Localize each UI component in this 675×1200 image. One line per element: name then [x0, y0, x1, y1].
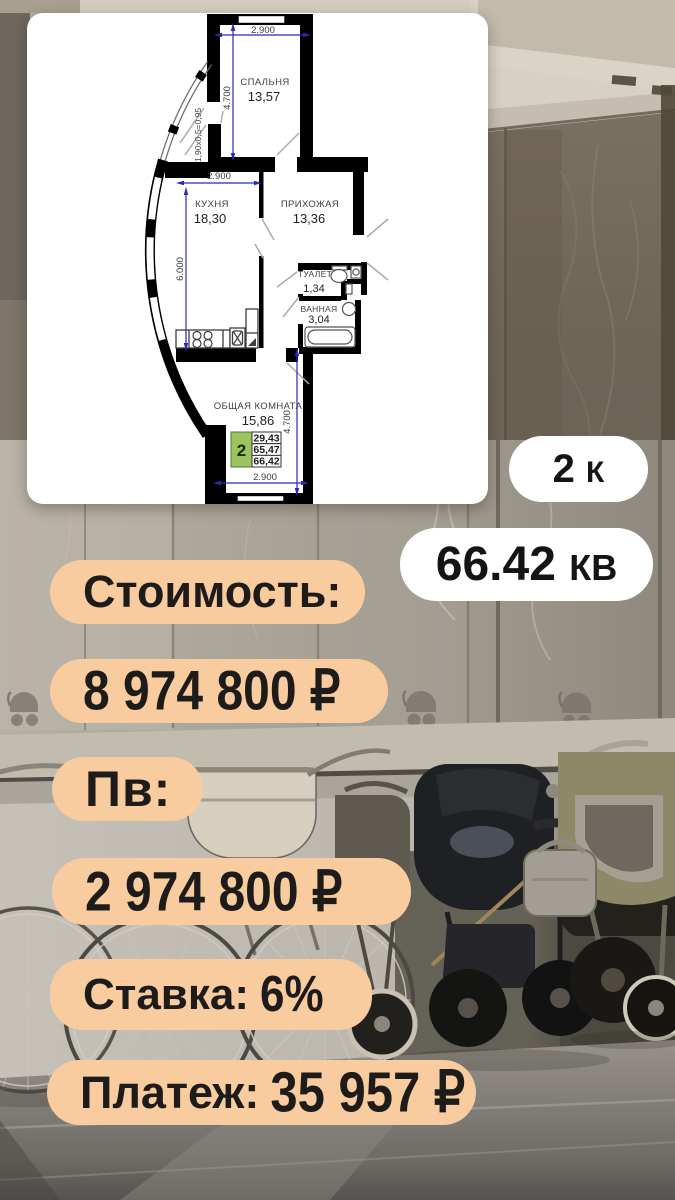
svg-text:ТУАЛЕТ: ТУАЛЕТ — [298, 269, 332, 279]
svg-text:КУХНЯ: КУХНЯ — [195, 199, 229, 210]
svg-text:3,04: 3,04 — [308, 314, 329, 326]
svg-text:66,42: 66,42 — [253, 456, 279, 468]
svg-text:2: 2 — [237, 441, 246, 460]
svg-text:1,90х0,5=0,95: 1,90х0,5=0,95 — [193, 108, 203, 162]
svg-text:29,43: 29,43 — [253, 432, 279, 444]
svg-text:6.000: 6.000 — [175, 257, 186, 281]
svg-text:СПАЛЬНЯ: СПАЛЬНЯ — [240, 77, 289, 88]
svg-text:ВАННАЯ: ВАННАЯ — [301, 304, 338, 314]
svg-text:13,57: 13,57 — [248, 89, 281, 104]
svg-text:18,30: 18,30 — [194, 211, 227, 226]
svg-text:13,36: 13,36 — [293, 211, 326, 226]
svg-text:2.900: 2.900 — [253, 472, 277, 483]
svg-text:ПРИХОЖАЯ: ПРИХОЖАЯ — [281, 199, 339, 210]
svg-text:4.700: 4.700 — [282, 410, 293, 434]
svg-text:ОБЩАЯ КОМНАТА: ОБЩАЯ КОМНАТА — [214, 401, 303, 412]
svg-text:2.900: 2.900 — [207, 171, 231, 182]
svg-text:4.700: 4.700 — [222, 86, 233, 110]
svg-text:65,47: 65,47 — [253, 444, 279, 456]
svg-text:1,34: 1,34 — [303, 283, 324, 295]
svg-text:2.900: 2.900 — [251, 25, 275, 36]
svg-text:15,86: 15,86 — [242, 413, 275, 428]
